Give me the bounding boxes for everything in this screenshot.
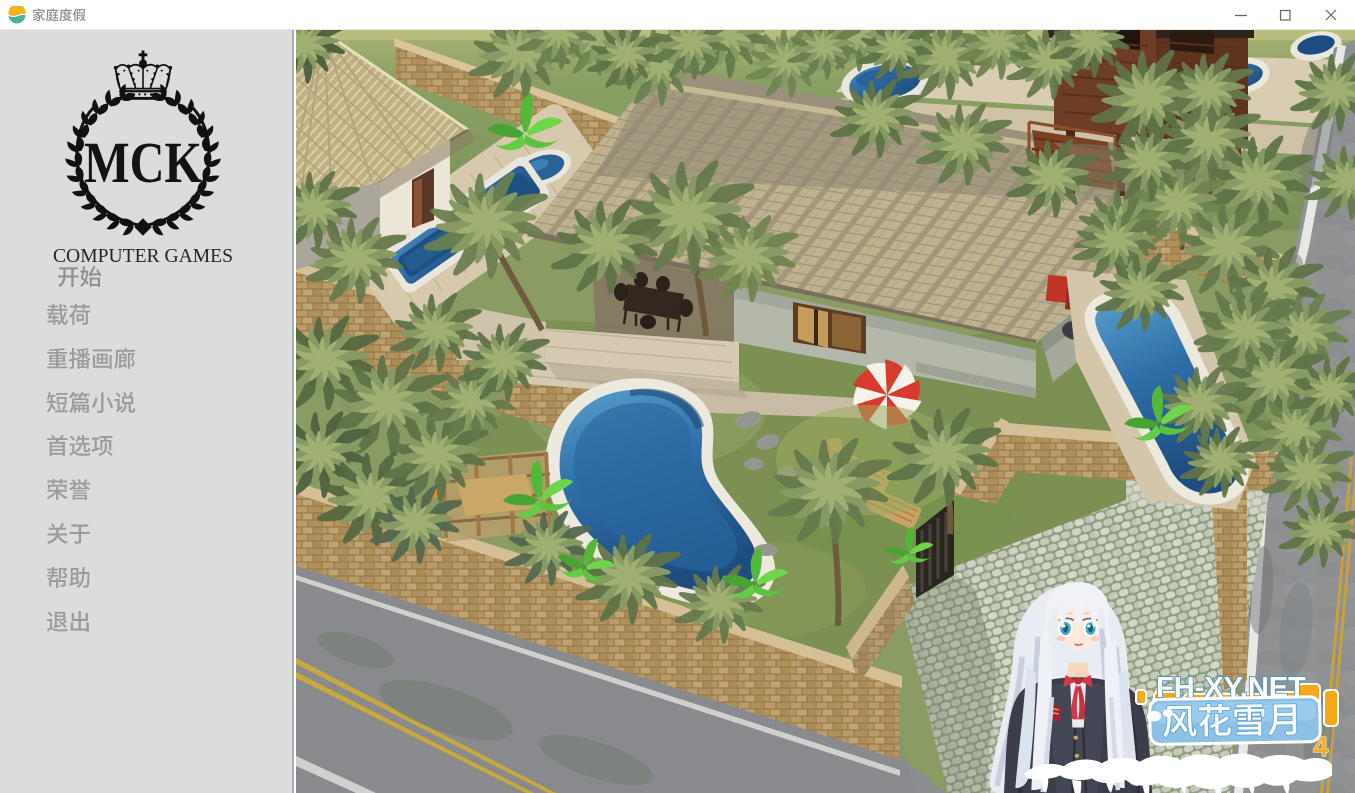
svg-text:MCK: MCK — [84, 130, 202, 195]
svg-text:4: 4 — [1313, 731, 1329, 762]
svg-text:COMPUTER GAMES: COMPUTER GAMES — [53, 245, 233, 267]
